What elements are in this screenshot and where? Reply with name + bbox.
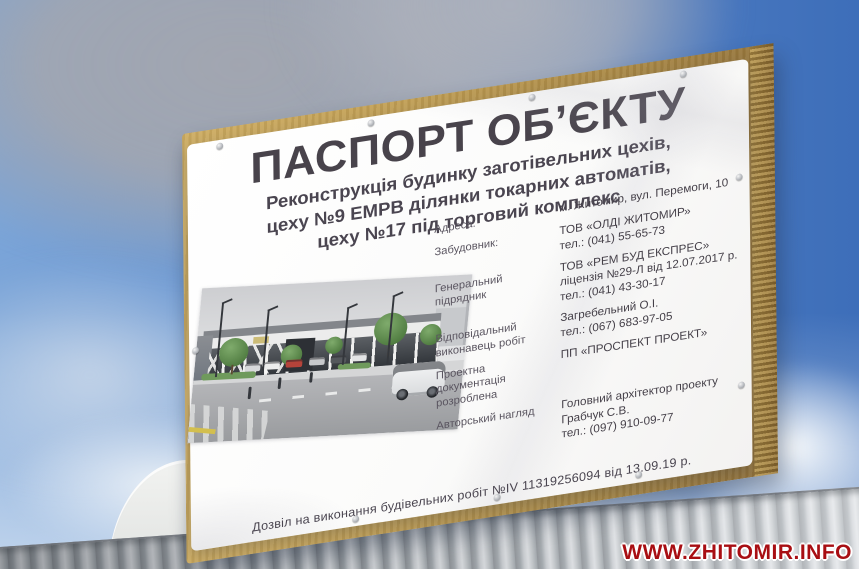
sign-fields: Адреса:м. Житомир, вул. Перемоги, 10Забу… (434, 173, 745, 461)
construction-passport-sign: ПАСПОРТ ОБ’ЄКТУ Реконструкція будинку за… (187, 59, 753, 552)
rendering-lamp-arm (222, 298, 233, 304)
rendering-car (264, 361, 280, 369)
rendering-car (244, 363, 260, 371)
rendering-car (309, 357, 325, 365)
screw (494, 493, 501, 501)
watermark: WWW.ZHITOMIR.INFO (622, 541, 852, 565)
rendering-crosswalk (187, 403, 270, 443)
construction-site-photo: ПАСПОРТ ОБ’ЄКТУ Реконструкція будинку за… (0, 0, 859, 569)
architectural-rendering (187, 274, 472, 443)
rendering-car-red (285, 359, 302, 368)
rendering-lamp-arm (267, 305, 278, 311)
rendering-lamp-arm (393, 291, 404, 297)
rendering-lamp-arm (347, 303, 358, 309)
rendering-car (352, 353, 367, 361)
screw (635, 471, 642, 479)
screw (352, 515, 359, 523)
